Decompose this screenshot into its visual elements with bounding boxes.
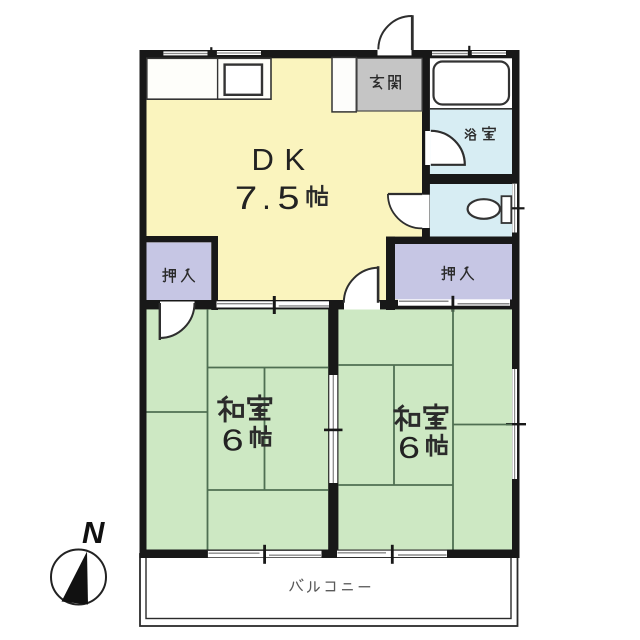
svg-text:5: 5 — [278, 180, 300, 216]
svg-text:N: N — [82, 515, 105, 550]
svg-text:DK: DK — [252, 142, 316, 177]
svg-text:7: 7 — [235, 180, 257, 216]
svg-text:6: 6 — [398, 430, 420, 465]
svg-text:.: . — [262, 180, 271, 216]
svg-text:6: 6 — [222, 423, 244, 458]
